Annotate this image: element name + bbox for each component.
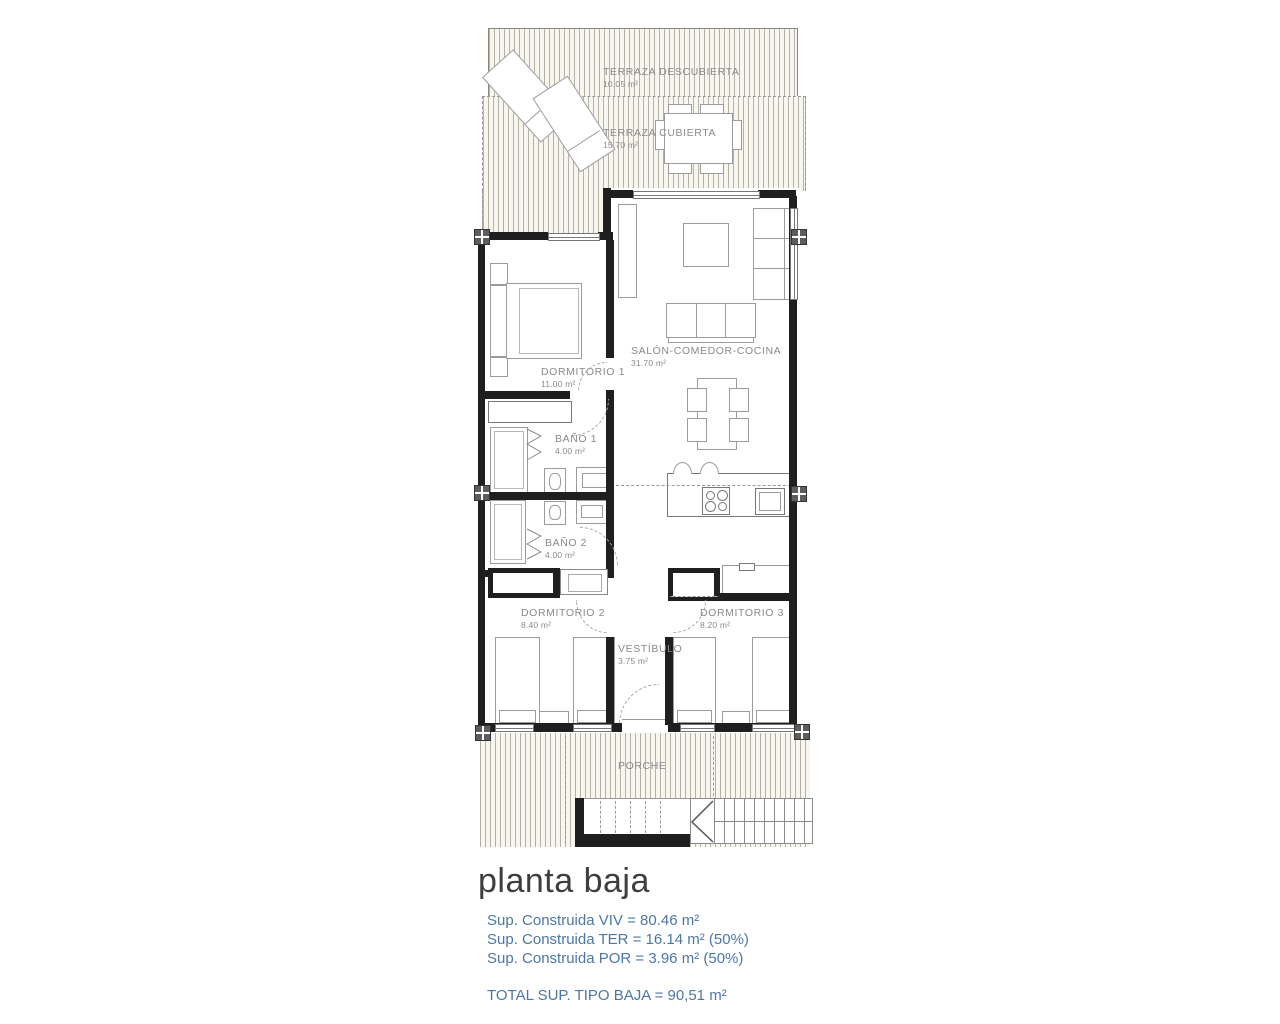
toilet [544,501,566,525]
cooktop [702,487,730,515]
wall [478,232,485,725]
room-label-dormitorio1: DORMITORIO 1 11.00 m² [541,366,625,390]
sofa-back-line [784,209,785,299]
wall [606,390,614,398]
room-area: 15.70 m² [603,140,716,151]
kitchen-appliance-counter [722,565,796,594]
room-label-porche: PORCHE [618,760,667,773]
sink-basin [581,505,603,518]
stair-step-line [630,801,631,833]
summary-line-ter: Sup. Construida TER = 16.14 m² (50%) [487,931,749,948]
sofa-seat-line [696,304,697,337]
room-name: BAÑO 1 [555,433,597,446]
room-label-bano2: BAÑO 2 4.00 m² [545,537,587,561]
room-name: DORMITORIO 2 [521,607,605,620]
room-label-dormitorio2: DORMITORIO 2 8.40 m² [521,607,605,631]
closet [560,569,608,595]
room-area: 3.75 m² [618,656,682,667]
dining-chair [687,388,707,412]
dining-chair [729,388,749,412]
lounger-fold-line [568,130,600,152]
column-marker [475,725,491,741]
room-label-dormitorio3: DORMITORIO 3 8.20 m² [700,607,784,631]
main-sofa [666,303,756,338]
tv-cabinet [618,204,637,298]
terrace-left-strip-hatch [482,190,604,234]
burner [705,501,716,512]
appliance [739,563,755,571]
double-bed [506,283,582,359]
nightstand [490,357,508,377]
sofa-seat-line [725,304,726,337]
exterior-stairs [690,798,813,844]
wall [485,492,612,500]
column-marker [474,229,490,245]
pillow [677,710,712,723]
toilet-bowl [549,505,561,520]
room-area: 31.70 m² [631,358,781,369]
burner [706,491,715,500]
porch-column-line [565,736,566,844]
closet [668,568,720,597]
toilet-bowl [549,473,561,490]
room-name: BAÑO 2 [545,537,587,550]
window [573,724,612,732]
sofa-base [668,337,754,343]
sink-basin [759,492,781,511]
bed-cover-line [519,288,579,354]
wall [606,637,614,725]
column-marker [474,485,490,501]
stair-step-line [645,801,646,833]
window [495,724,534,732]
wall [606,240,614,358]
pillow [756,710,791,723]
room-name: VESTÍBULO [618,643,682,656]
stair-wall [575,834,690,847]
shower-tray [490,500,526,564]
coffee-table [683,223,729,267]
kitchen-sink [755,488,785,515]
shower-inner [494,504,522,560]
window [633,191,760,199]
room-name: PORCHE [618,760,667,773]
porch-column-line [713,736,714,796]
wardrobe [488,401,572,423]
room-name: TERRAZA CUBIERTA [603,127,716,140]
room-label-terraza-descubierta: TERRAZA DESCUBIERTA 10.05 m² [603,66,739,90]
wall [603,190,633,198]
single-bed [495,637,540,726]
column-marker [791,486,807,502]
room-area: 4.00 m² [555,446,597,457]
window [680,724,715,732]
window [790,208,798,300]
wall [485,391,570,399]
shower-inner [494,431,524,489]
room-name: DORMITORIO 1 [541,366,625,379]
room-area: 10.05 m² [603,79,739,90]
side-sofa [753,208,793,300]
room-label-salon: SALÓN-COMEDOR-COCINA 31.70 m² [631,345,781,369]
sink-basin [582,473,607,488]
kitchen-zone-line [616,485,796,486]
room-name: DORMITORIO 3 [700,607,784,620]
summary-line-por: Sup. Construida POR = 3.96 m² (50%) [487,950,743,967]
window [752,724,795,732]
burner [718,502,727,511]
nightstand [490,263,508,285]
sofa-seat-line [754,268,792,269]
room-area: 4.00 m² [545,550,587,561]
sofa-seat-line [754,238,792,239]
burner [717,490,728,501]
room-label-vestibulo: VESTÍBULO 3.75 m² [618,643,682,667]
room-area: 8.20 m² [700,620,784,631]
stair-mid-line [714,821,813,822]
shower-tray [490,427,528,493]
plan-title: planta baja [478,862,650,901]
column-marker [791,229,807,245]
stair-step-line [660,801,661,833]
dining-chair [729,418,749,442]
summary-line-viv: Sup. Construida VIV = 80.46 m² [487,912,699,929]
stair-step-line [615,801,616,833]
column-marker [794,724,810,740]
total-line: TOTAL SUP. TIPO BAJA = 90,51 m² [487,987,727,1004]
room-label-terraza-cubierta: TERRAZA CUBIERTA 15.70 m² [603,127,716,151]
room-name: TERRAZA DESCUBIERTA [603,66,739,79]
floor-plan-page: TERRAZA DESCUBIERTA 10.05 m² TERRAZA CUB… [0,0,1280,1024]
closet-shelf [568,574,602,592]
room-name: SALÓN-COMEDOR-COCINA [631,345,781,358]
bathroom-sink [576,500,608,524]
closet [488,568,560,598]
stair-step-line [600,801,601,833]
room-area: 8.40 m² [521,620,605,631]
window [548,233,600,241]
room-label-bano1: BAÑO 1 4.00 m² [555,433,597,457]
pillow [499,710,536,723]
dining-chair [687,418,707,442]
room-area: 11.00 m² [541,379,625,390]
